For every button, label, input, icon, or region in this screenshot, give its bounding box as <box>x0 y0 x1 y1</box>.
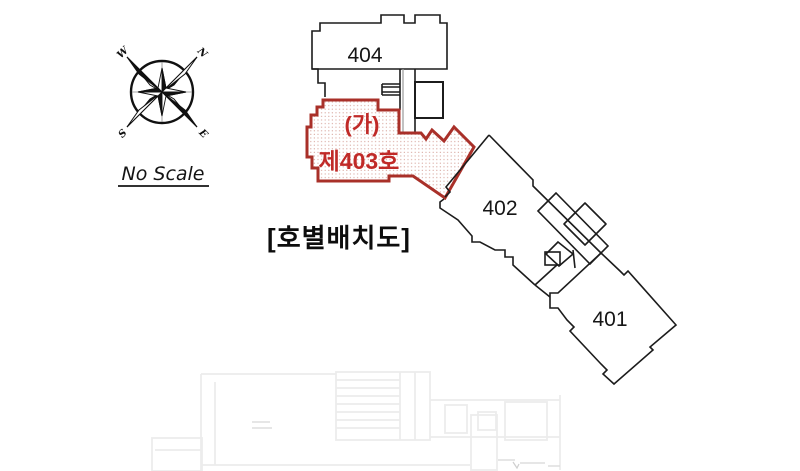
unit-layout-drawing: W N S E No Scale 404 (가) 제403호 <box>0 0 800 471</box>
unit-404-label: 404 <box>347 44 382 67</box>
unit-403-label: 제403호 <box>319 148 400 174</box>
unit-401-connector <box>535 285 550 297</box>
compass-east-label: E <box>196 127 210 141</box>
cursor-mark <box>513 462 519 468</box>
stair-well <box>564 203 606 245</box>
stair-landing-box <box>545 252 560 265</box>
unit-402-ne-edge <box>489 135 601 253</box>
stair-tick <box>573 250 575 268</box>
compass-west-label: W <box>115 44 132 61</box>
faint-underlay-plan <box>152 372 560 471</box>
compass-rose: W N S E <box>115 44 210 141</box>
unit-403-mark: (가) <box>345 112 380 137</box>
plan-title: [호별배치도] <box>267 223 411 253</box>
unit-404-left-steps <box>312 69 325 97</box>
unit-401: 401 <box>535 253 676 384</box>
unit-401-label: 401 <box>592 308 627 331</box>
scale-note: No Scale <box>118 163 209 186</box>
floor-plan-canvas: W N S E No Scale 404 (가) 제403호 <box>0 0 800 471</box>
unit-402-label: 402 <box>482 197 517 220</box>
compass-south-label: S <box>117 128 130 141</box>
unit-402-se-edge <box>535 264 558 285</box>
balcony-bars <box>382 84 400 95</box>
stair-room <box>415 82 443 118</box>
no-scale-text: No Scale <box>122 163 205 185</box>
